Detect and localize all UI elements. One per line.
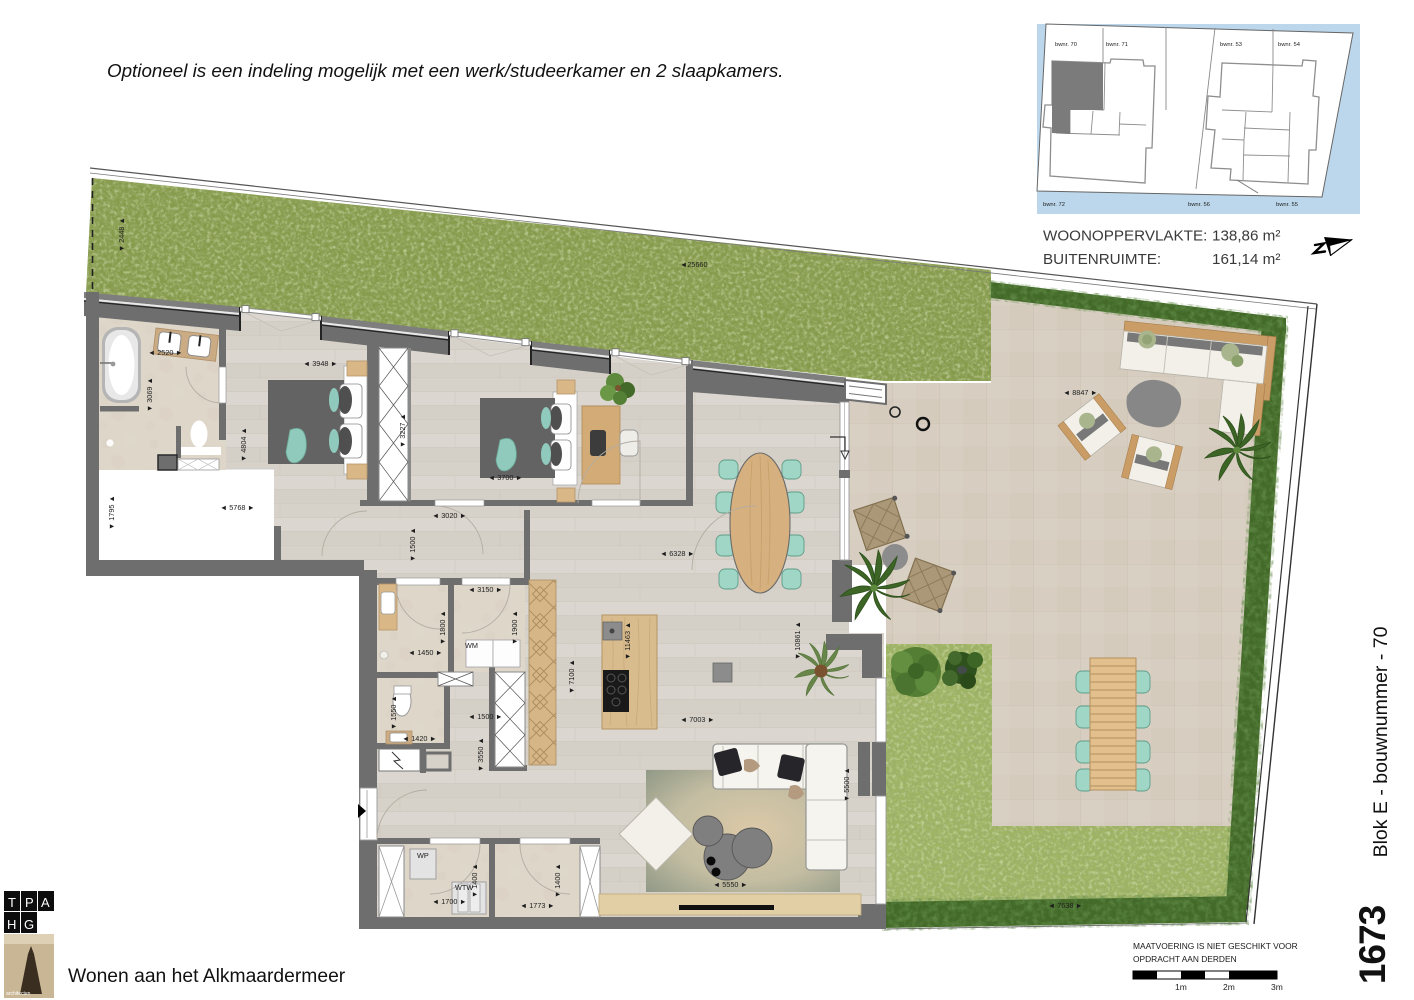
svg-text:▼ 1900 ▲: ▼ 1900 ▲	[510, 610, 519, 645]
svg-text:A: A	[41, 895, 50, 910]
svg-text:bwnr. 56: bwnr. 56	[1188, 202, 1210, 208]
svg-text:WOONOPPERVLAKTE:: WOONOPPERVLAKTE:	[1043, 228, 1207, 245]
svg-text:▼ 3227 ▲: ▼ 3227 ▲	[398, 413, 407, 448]
svg-text:◄ 1700 ►: ◄ 1700 ►	[432, 897, 467, 906]
svg-text:◄ 5550 ►: ◄ 5550 ►	[713, 880, 748, 889]
svg-text:OPDRACHT AAN DERDEN: OPDRACHT AAN DERDEN	[1133, 954, 1237, 964]
svg-text:▼ 5500 ▲: ▼ 5500 ▲	[842, 767, 851, 802]
svg-text:Blok E - bouwnummer - 70: Blok E - bouwnummer - 70	[1370, 626, 1392, 857]
svg-text:◄ 3948 ►: ◄ 3948 ►	[303, 359, 338, 368]
svg-text:1673: 1673	[1352, 905, 1393, 984]
svg-text:◄25660: ◄25660	[680, 260, 708, 269]
svg-text:bwnr. 53: bwnr. 53	[1220, 42, 1242, 48]
svg-text:▼ 3550 ▲: ▼ 3550 ▲	[476, 737, 485, 772]
svg-text:G: G	[24, 917, 34, 932]
svg-text:▼ 4804 ▲: ▼ 4804 ▲	[239, 427, 248, 462]
svg-text:2m: 2m	[1223, 982, 1235, 992]
svg-text:▼ 11463 ▲: ▼ 11463 ▲	[623, 622, 632, 660]
svg-text:bwnr. 71: bwnr. 71	[1106, 42, 1128, 48]
svg-text:◄ 1773 ►: ◄ 1773 ►	[520, 901, 555, 910]
svg-text:◄ 3700 ►: ◄ 3700 ►	[488, 473, 523, 482]
svg-text:T: T	[8, 895, 16, 910]
svg-text:Wonen aan het Alkmaardermeer: Wonen aan het Alkmaardermeer	[68, 966, 346, 987]
svg-text:◄ 3150 ►: ◄ 3150 ►	[468, 585, 503, 594]
svg-text:WP: WP	[417, 851, 429, 860]
svg-text:◄ 7003 ►: ◄ 7003 ►	[680, 715, 715, 724]
svg-text:▼ 1400 ▲: ▼ 1400 ▲	[470, 863, 479, 898]
svg-text:138,86 m²: 138,86 m²	[1212, 228, 1280, 245]
svg-text:◄ 8847 ►: ◄ 8847 ►	[1063, 388, 1098, 397]
svg-text:◄ 3020 ►: ◄ 3020 ►	[432, 511, 467, 520]
svg-text:◄ 6328 ►: ◄ 6328 ►	[660, 549, 695, 558]
svg-text:◄ 7638 ►: ◄ 7638 ►	[1048, 901, 1083, 910]
svg-text:◄ 1500 ►: ◄ 1500 ►	[468, 712, 503, 721]
svg-text:161,14 m²: 161,14 m²	[1212, 251, 1280, 268]
svg-text:H: H	[7, 917, 16, 932]
svg-text:◄ 5768 ►: ◄ 5768 ►	[220, 503, 255, 512]
svg-text:bwnr. 55: bwnr. 55	[1276, 202, 1298, 208]
svg-text:bwnr. 70: bwnr. 70	[1055, 42, 1077, 48]
svg-text:bwnr. 72: bwnr. 72	[1043, 202, 1065, 208]
svg-text:◄ 2520 ►: ◄ 2520 ►	[148, 348, 183, 357]
svg-text:BUITENRUIMTE:: BUITENRUIMTE:	[1043, 251, 1161, 268]
svg-text:bwnr. 54: bwnr. 54	[1278, 42, 1301, 48]
svg-text:▼ 1800 ▲: ▼ 1800 ▲	[438, 610, 447, 645]
svg-text:▼ 1500 ▲: ▼ 1500 ▲	[408, 527, 417, 562]
svg-text:▼ 1550 ▲: ▼ 1550 ▲	[389, 695, 398, 730]
svg-text:▼ 10861 ▲: ▼ 10861 ▲	[793, 621, 802, 660]
svg-text:Optioneel is een indeling moge: Optioneel is een indeling mogelijk met e…	[107, 60, 783, 81]
svg-text:WM: WM	[465, 641, 478, 650]
svg-text:▼ 2448 ▲: ▼ 2448 ▲	[117, 217, 126, 252]
svg-text:3m: 3m	[1271, 982, 1283, 992]
svg-text:MAATVOERING IS NIET GESCHIKT V: MAATVOERING IS NIET GESCHIKT VOOR	[1133, 941, 1298, 951]
svg-text:◄ 1450 ►: ◄ 1450 ►	[408, 648, 443, 657]
svg-text:▼ 7100 ▲: ▼ 7100 ▲	[567, 659, 576, 694]
svg-text:P: P	[25, 895, 34, 910]
svg-text:▼ 1795 ▲: ▼ 1795 ▲	[107, 495, 116, 530]
svg-text:WTW: WTW	[455, 883, 473, 892]
svg-text:▼ 3069 ▲: ▼ 3069 ▲	[145, 377, 154, 412]
svg-text:◄ 1420 ►: ◄ 1420 ►	[402, 734, 437, 743]
svg-text:▼ 1400 ▲: ▼ 1400 ▲	[553, 863, 562, 898]
svg-text:1m: 1m	[1175, 982, 1187, 992]
svg-text:architecten: architecten	[6, 991, 31, 997]
